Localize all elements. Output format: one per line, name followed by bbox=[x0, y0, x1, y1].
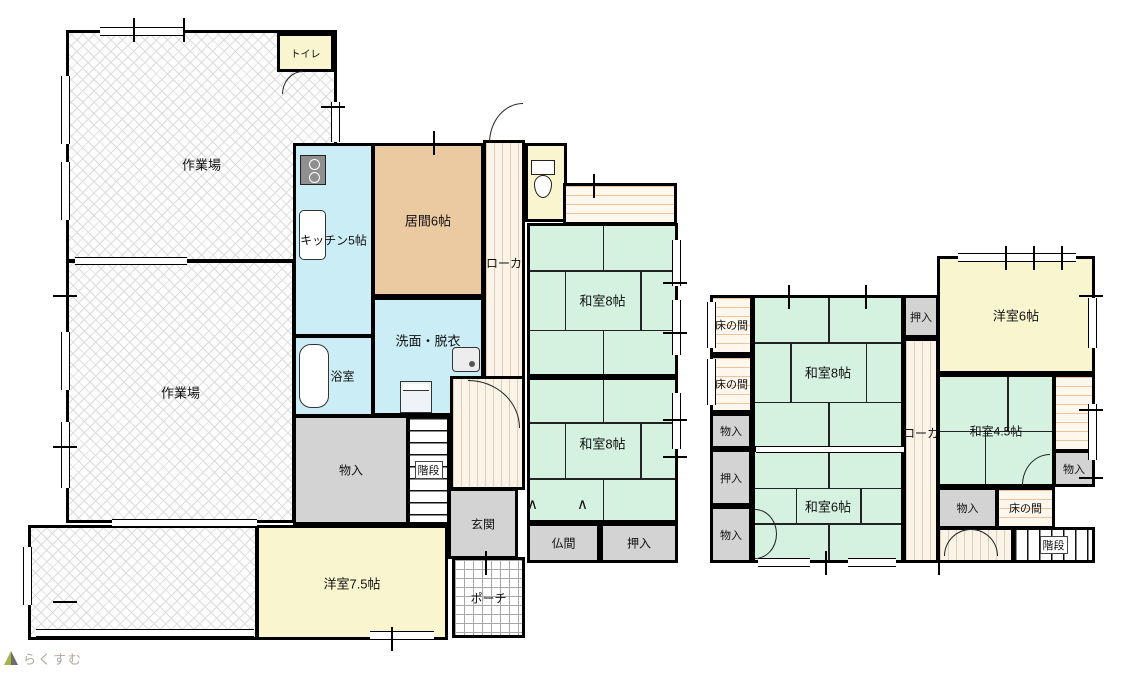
window-marker bbox=[61, 422, 70, 488]
room-label: 床の間 bbox=[715, 317, 748, 333]
room-label: キッチン5帖 bbox=[300, 232, 367, 249]
room-label: 和室8帖 bbox=[579, 291, 625, 310]
window-marker bbox=[36, 629, 254, 637]
room-label: 作業場 bbox=[161, 382, 200, 401]
room-label: 和室8帖 bbox=[579, 434, 625, 453]
room-oshiire-2f-a: 押入 bbox=[710, 449, 752, 506]
tatami-line bbox=[530, 270, 675, 272]
room-label: 物入 bbox=[720, 527, 742, 543]
dimension-tick bbox=[53, 295, 77, 297]
room-label: ローカ bbox=[903, 424, 939, 441]
room-oshiire-1f: 押入 bbox=[600, 523, 678, 563]
window-marker bbox=[672, 240, 681, 286]
stove-icon bbox=[300, 155, 326, 185]
dimension-tick bbox=[663, 419, 687, 421]
room-label: 物入 bbox=[339, 462, 363, 479]
window-marker bbox=[672, 393, 681, 449]
door-swing-mark: ∧ bbox=[577, 497, 588, 512]
room-western-7-5: 洋室7.5帖 bbox=[256, 525, 448, 640]
dimension-tick bbox=[133, 18, 135, 42]
room-oshiire-2f-b: 押入 bbox=[903, 295, 939, 338]
dimension-tick bbox=[593, 174, 595, 198]
room-butsuma: 仏間 bbox=[527, 523, 600, 563]
window-marker bbox=[112, 519, 257, 527]
tatami-line bbox=[755, 342, 901, 344]
dimension-tick bbox=[938, 551, 940, 575]
room-corridor-2: ローカ bbox=[903, 338, 939, 563]
room-washitsu-8-c: 和室8帖 bbox=[752, 295, 904, 449]
logo: らくすむ bbox=[3, 649, 83, 668]
room-washitsu-8-a: 和室8帖 bbox=[527, 223, 678, 377]
room-engawa-1 bbox=[563, 183, 677, 225]
room-label: 洗面・脱衣 bbox=[395, 330, 460, 349]
door-arc bbox=[489, 103, 523, 143]
window-marker bbox=[100, 27, 185, 36]
room-toilet-upper: トイレ bbox=[277, 33, 334, 72]
dimension-tick bbox=[53, 446, 77, 448]
window-marker bbox=[370, 631, 434, 640]
room-tokonoma-2f-b: 床の間 bbox=[710, 355, 753, 413]
room-label: 物入 bbox=[957, 500, 979, 516]
washer-icon bbox=[400, 381, 432, 413]
window-marker bbox=[61, 332, 70, 390]
dimension-tick bbox=[1033, 246, 1035, 270]
dimension-tick bbox=[1079, 477, 1103, 479]
room-storage-1f: 物入 bbox=[293, 415, 409, 525]
room-porch: ポーチ bbox=[452, 557, 525, 638]
room-storage-2f-b: 物入 bbox=[710, 506, 752, 563]
room-storage-2f-d: 物入 bbox=[937, 487, 998, 529]
tatami-line bbox=[530, 422, 675, 424]
logo-house-icon bbox=[3, 651, 19, 666]
window-marker bbox=[848, 558, 896, 567]
tatami-line bbox=[796, 488, 798, 524]
dimension-tick bbox=[1005, 246, 1007, 270]
room-label: 作業場 bbox=[182, 155, 221, 174]
room-label: トイレ bbox=[291, 45, 321, 60]
door-swing-mark: ∧ bbox=[527, 497, 538, 512]
tatami-line bbox=[866, 342, 868, 401]
dimension-tick bbox=[433, 131, 435, 155]
tatami-line bbox=[860, 488, 862, 524]
room-label: 押入 bbox=[720, 470, 742, 486]
toilet-icon bbox=[529, 160, 555, 198]
window-marker bbox=[61, 76, 70, 144]
tub-icon bbox=[299, 344, 329, 408]
tatami-line bbox=[640, 270, 642, 329]
room-washitsu-8-b: 和室8帖 bbox=[527, 377, 678, 523]
tatami-line bbox=[828, 298, 830, 342]
dimension-tick bbox=[1061, 246, 1063, 270]
room-label: 玄関 bbox=[471, 515, 495, 532]
dimension-tick bbox=[825, 551, 827, 575]
dimension-tick bbox=[183, 18, 185, 42]
window-marker bbox=[1088, 298, 1097, 348]
room-stairs-1f: 階段 bbox=[407, 415, 450, 525]
tatami-line bbox=[603, 380, 605, 422]
room-label: ポーチ bbox=[470, 589, 506, 606]
basin-icon bbox=[452, 347, 480, 372]
room-western-6: 洋室6帖 bbox=[937, 256, 1095, 374]
window-marker bbox=[75, 257, 187, 265]
window-marker bbox=[23, 547, 32, 605]
room-label: 床の間 bbox=[715, 376, 748, 392]
dimension-tick bbox=[321, 106, 345, 108]
dimension-tick bbox=[663, 332, 687, 334]
room-washitsu-6: 和室6帖 bbox=[752, 449, 904, 563]
room-label: 階段 bbox=[415, 461, 443, 479]
tatami-line bbox=[603, 226, 605, 270]
room-label: 物入 bbox=[720, 423, 742, 439]
tatami-line bbox=[790, 342, 792, 401]
room-label: 階段 bbox=[1040, 536, 1068, 554]
room-storage-2f-a: 物入 bbox=[710, 413, 752, 449]
window-marker bbox=[958, 253, 1076, 262]
room-label: 和室8帖 bbox=[805, 363, 851, 382]
room-label: 浴室 bbox=[330, 368, 354, 385]
window-marker bbox=[756, 446, 904, 453]
room-label: 押入 bbox=[627, 535, 651, 552]
room-tokonoma-2f-c: 床の間 bbox=[996, 487, 1055, 529]
tatami-line bbox=[565, 422, 567, 478]
room-living: 居間6帖 bbox=[372, 143, 484, 297]
window-marker bbox=[1088, 404, 1097, 460]
room-label: 押入 bbox=[910, 309, 932, 325]
room-label: 居間6帖 bbox=[405, 211, 451, 230]
tatami-line bbox=[828, 452, 830, 488]
dimension-tick bbox=[865, 285, 867, 309]
logo-text: らくすむ bbox=[23, 649, 83, 668]
room-label: 物入 bbox=[1063, 461, 1085, 477]
window-marker bbox=[672, 300, 681, 355]
tatami-line bbox=[755, 488, 901, 490]
tatami-line bbox=[565, 270, 567, 329]
room-tokonoma-2f-a: 床の間 bbox=[710, 295, 753, 355]
room-label: 仏間 bbox=[551, 535, 575, 552]
floor-plan-canvas: らくすむ 作業場作業場トイレキッチン5帖居間6帖洗面・脱衣浴室ローカ和室8帖和室… bbox=[0, 0, 1135, 673]
room-label: 洋室6帖 bbox=[993, 306, 1039, 325]
dimension-tick bbox=[663, 282, 687, 284]
room-workshop-2: 作業場 bbox=[66, 260, 295, 523]
dimension-tick bbox=[391, 627, 393, 651]
room-label: ローカ bbox=[486, 254, 522, 271]
room-entrance: 玄関 bbox=[448, 488, 518, 559]
dimension-tick bbox=[485, 551, 487, 575]
tatami-line bbox=[828, 402, 830, 446]
room-label: 洋室7.5帖 bbox=[323, 573, 380, 592]
room-stairs-2f: 階段 bbox=[1012, 527, 1095, 563]
dimension-tick bbox=[1079, 295, 1103, 297]
tatami-line bbox=[828, 523, 830, 560]
dimension-tick bbox=[1079, 409, 1103, 411]
room-label: 床の間 bbox=[1009, 500, 1042, 516]
window-marker bbox=[61, 162, 70, 220]
room-workshop-3 bbox=[28, 525, 258, 640]
tatami-line bbox=[603, 478, 605, 520]
window-marker bbox=[758, 558, 810, 567]
room-label: 和室4.5帖 bbox=[970, 422, 1023, 439]
dimension-tick bbox=[53, 601, 77, 603]
window-marker bbox=[331, 102, 340, 142]
tatami-line bbox=[640, 422, 642, 478]
dimension-tick bbox=[663, 456, 687, 458]
tatami-line bbox=[603, 330, 605, 374]
room-label: 和室6帖 bbox=[805, 497, 851, 516]
dimension-tick bbox=[788, 285, 790, 309]
